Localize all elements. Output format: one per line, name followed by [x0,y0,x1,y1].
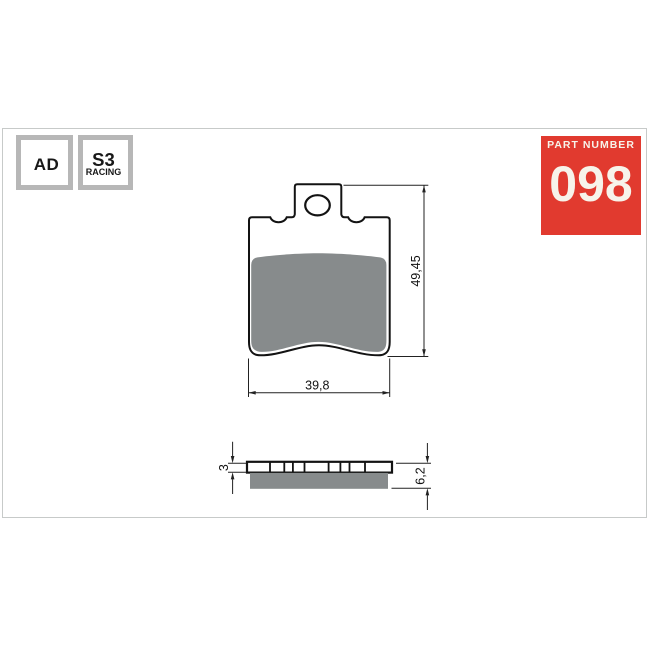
svg-text:6,2: 6,2 [413,467,427,484]
svg-text:3: 3 [217,464,231,471]
svg-text:49,45: 49,45 [409,255,423,286]
svg-text:39,8: 39,8 [305,379,329,393]
